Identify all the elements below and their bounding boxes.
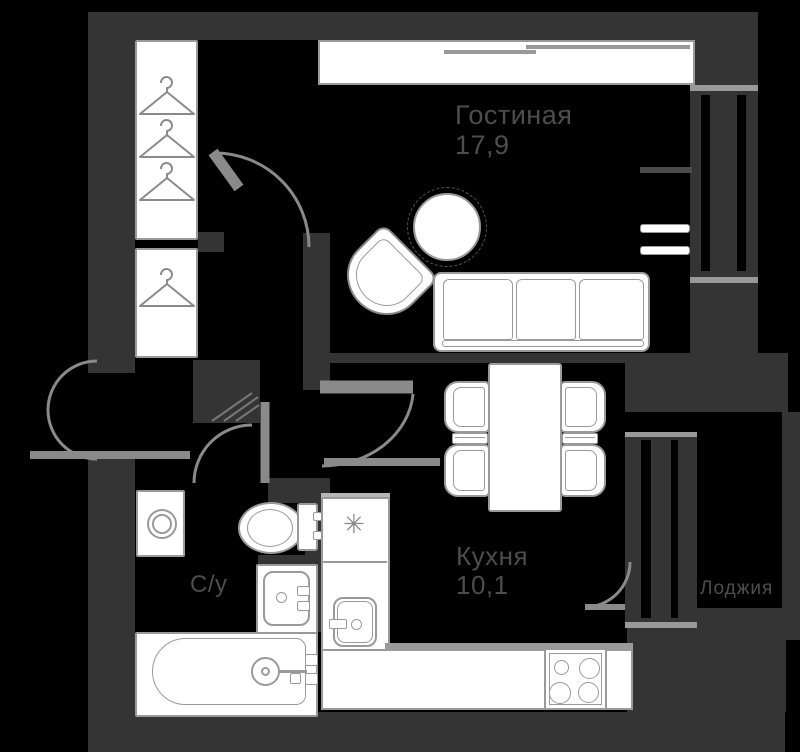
stove-burner bbox=[554, 660, 569, 675]
wardrobe-cabinet-large bbox=[135, 40, 198, 240]
loggia-door-arc bbox=[585, 562, 630, 607]
bathtub-faucet bbox=[305, 673, 318, 685]
chair-seat-line bbox=[453, 387, 485, 427]
kitchen-area: 10,1 bbox=[456, 571, 528, 600]
bathtub-drain-inner bbox=[261, 667, 270, 676]
kitchen-sink-knob bbox=[351, 619, 362, 630]
wall-right-corner bbox=[690, 40, 758, 85]
dining-chair bbox=[444, 381, 490, 433]
dining-chair bbox=[444, 444, 490, 497]
loggia-name: Лоджия bbox=[700, 578, 773, 599]
armrest-line bbox=[565, 437, 595, 438]
living-room-name: Гостиная bbox=[455, 100, 572, 130]
window-kitchen bbox=[625, 432, 697, 628]
bath-sink-faucet bbox=[297, 586, 310, 596]
wall-loggia-bottom bbox=[697, 608, 786, 712]
wall-shaft bbox=[193, 360, 260, 423]
stove-burner bbox=[578, 682, 599, 703]
washer-drum-inner bbox=[152, 514, 172, 534]
wardrobe-door-leaf bbox=[213, 152, 239, 188]
dining-chair bbox=[560, 444, 606, 497]
living-room-area: 17,9 bbox=[455, 130, 572, 160]
kitchen-name: Кухня bbox=[456, 542, 528, 571]
chair-armrest bbox=[562, 433, 598, 444]
sofa-cushion bbox=[516, 279, 576, 340]
sofa bbox=[433, 272, 650, 352]
wall-cabinet-stub bbox=[198, 232, 224, 252]
window-glass-line bbox=[671, 440, 678, 618]
wall-left-lower bbox=[88, 457, 135, 752]
window-edge bbox=[625, 432, 697, 437]
chair-armrest bbox=[452, 433, 488, 444]
kitchen-sink-faucet bbox=[329, 619, 347, 629]
counter-divider-line bbox=[323, 561, 387, 563]
bathtub-faucet bbox=[305, 654, 318, 666]
kitchen-door-arc bbox=[322, 394, 413, 466]
window-top-sill bbox=[318, 40, 695, 85]
wall-loggia-right bbox=[782, 412, 800, 640]
window-edge bbox=[625, 622, 697, 628]
dining-table bbox=[488, 363, 562, 512]
radiator bbox=[640, 224, 690, 233]
bathroom-name: С/у bbox=[190, 571, 228, 598]
stove-burner bbox=[549, 682, 571, 704]
bathtub-mixer bbox=[290, 673, 301, 684]
window-living-right bbox=[690, 85, 758, 283]
living-room-label: Гостиная 17,9 bbox=[455, 100, 572, 160]
wall-right-mid bbox=[690, 283, 758, 353]
chair-seat-line bbox=[565, 387, 597, 427]
wall-living-bottom bbox=[303, 353, 690, 363]
bath-sink-faucet bbox=[297, 601, 310, 611]
chair-seat-line bbox=[453, 450, 485, 491]
window-glass-line bbox=[737, 95, 746, 271]
wall-left-upper bbox=[88, 12, 135, 373]
chair-seat-line bbox=[565, 450, 597, 491]
sofa-back-line bbox=[442, 340, 644, 347]
sofa-cushion bbox=[579, 279, 644, 340]
entry-door-arc bbox=[48, 361, 97, 459]
armrest-line bbox=[455, 437, 485, 438]
window-glass-line bbox=[641, 440, 651, 618]
kitchen-label: Кухня 10,1 bbox=[456, 542, 528, 600]
bath-sink-drain bbox=[276, 592, 287, 603]
radiator bbox=[640, 246, 690, 255]
loggia-label: Лоджия bbox=[700, 578, 773, 599]
vent-star-icon: ✳ bbox=[343, 510, 365, 539]
dining-chair bbox=[560, 381, 606, 433]
wardrobe-door-arc bbox=[215, 153, 309, 247]
toilet-bowl-inner bbox=[247, 509, 293, 547]
floor-plan: ✳ bbox=[0, 0, 800, 752]
window-edge bbox=[690, 277, 758, 283]
stove bbox=[544, 648, 607, 710]
bathroom-door-arc bbox=[194, 425, 252, 483]
window-edge bbox=[690, 85, 758, 91]
wall-top bbox=[88, 12, 758, 40]
window-glass-line bbox=[701, 95, 710, 271]
bathroom-label: С/у bbox=[190, 572, 228, 599]
wall-kitchen-right bbox=[627, 620, 697, 712]
curtain-rail bbox=[640, 167, 692, 173]
wall-mid-vertical bbox=[303, 233, 330, 390]
toilet-tank bbox=[297, 503, 318, 551]
window-frame-line bbox=[526, 45, 690, 49]
round-table bbox=[413, 193, 481, 261]
washing-machine bbox=[136, 490, 185, 557]
sofa-cushion bbox=[443, 279, 513, 340]
window-frame-line bbox=[444, 50, 536, 54]
stove-burner bbox=[579, 658, 600, 679]
wardrobe-cabinet-small bbox=[135, 248, 198, 358]
wall-bottom bbox=[88, 712, 785, 752]
